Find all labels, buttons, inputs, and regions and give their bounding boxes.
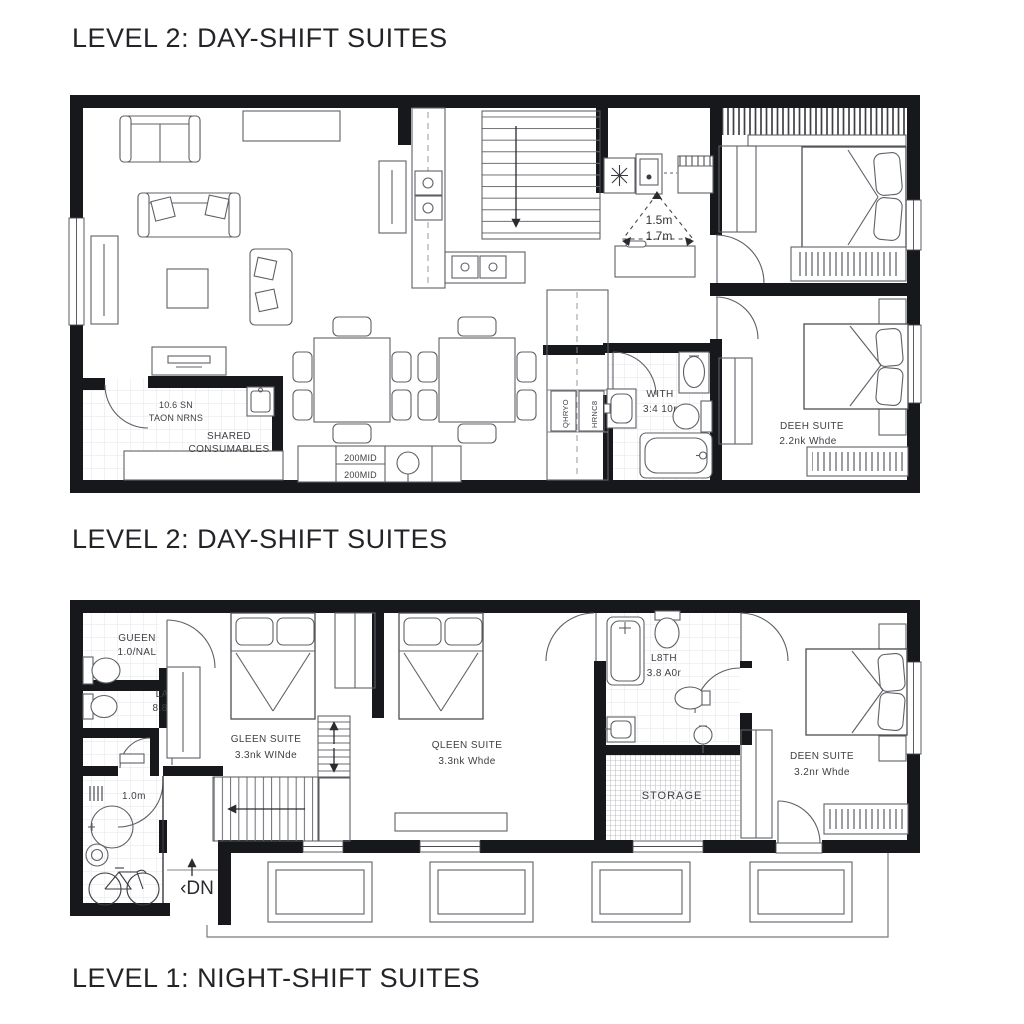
bedroom2-door-arc [716, 297, 758, 339]
bedroom-1 [719, 146, 906, 281]
suite-label: GLEEN SUITE [231, 734, 302, 745]
console-table-symbol [243, 111, 340, 141]
bedroom1-door-arc [716, 235, 764, 283]
suite-label: 2.2nk Whde [779, 436, 836, 447]
nightstand-symbol [879, 299, 906, 325]
window-suite3 [906, 662, 921, 754]
toilet-symbol [655, 611, 680, 648]
dining-table-symbol [418, 317, 536, 443]
window-left [69, 218, 84, 325]
suite1-door-arc [167, 620, 215, 668]
suite-2: QLEEN SUITE 3.3nk Whde [395, 613, 507, 831]
media-cabinet-symbol [379, 161, 406, 233]
balcony-deck [714, 108, 907, 146]
pantry-label: QHRYO [561, 399, 570, 428]
suite-label: 3.3nk Whde [438, 756, 495, 767]
bedroom-2: DEEH SUITE 2.2nk Whde [719, 299, 908, 476]
pedestal-sink-symbol [679, 352, 709, 393]
sink-symbol [605, 717, 635, 742]
counter-cell-label: 200MID [344, 453, 377, 463]
sink-symbol [452, 256, 478, 278]
suite-label: 3.3nk WINde [235, 750, 297, 761]
room-label: WITH [646, 389, 673, 400]
counter-cell-label: 200MID [344, 470, 377, 480]
triangle-dimension: 1.5m [646, 213, 673, 227]
dresser-rail-symbol [807, 447, 908, 476]
armchair-symbol [250, 249, 292, 325]
floorplans-canvas: 200MID 200MID [0, 0, 1024, 1024]
level2-floorplan: 200MID 200MID [69, 95, 921, 493]
deck-planter-symbol [430, 862, 533, 922]
toilet-symbol [83, 657, 120, 684]
suite3-door-arc [740, 613, 788, 661]
pantry-column: QHRYO HRNC8 [547, 290, 608, 480]
bathtub-symbol [640, 433, 712, 478]
appliance-nook: 1.5m 1.7m [604, 154, 713, 277]
double-bed-symbol [399, 613, 483, 719]
door-threshold [776, 843, 822, 853]
room-label: GUEEN [118, 633, 156, 644]
corner-sink-symbol [604, 389, 636, 428]
dresser-rail-symbol [824, 804, 908, 834]
wardrobe-symbol [167, 667, 200, 758]
bathtub-symbol [607, 617, 644, 685]
sofa-symbol [138, 193, 240, 237]
sink-symbol [247, 387, 274, 416]
window-bottom [633, 841, 703, 852]
dresser-rail-symbol [791, 247, 906, 281]
closet-rail-symbol [335, 613, 375, 688]
floorplan-sheet: LEVEL 2: DAY-SHIFT SUITES LEVEL 2: DAY-S… [0, 0, 1024, 1024]
closet-rail-symbol [719, 146, 756, 232]
triangle-dimension: 1.7m [646, 229, 673, 243]
suite-3: DEEN SUITE 3.2nr Whde [741, 624, 908, 838]
sink-symbol [480, 256, 506, 278]
deck-planter-symbol [750, 862, 852, 922]
storage-room: STORAGE [642, 790, 703, 802]
counter-row: 200MID 200MID [298, 446, 461, 482]
suite-label: DEEN SUITE [790, 751, 854, 762]
double-bed-symbol [802, 147, 906, 248]
deck-planter-symbol [268, 862, 372, 922]
appliance-icon [678, 156, 713, 193]
suite-label: 3.2nr Whde [794, 767, 850, 778]
nightstand-symbol [879, 409, 906, 435]
pantry-label: HRNC8 [590, 401, 599, 428]
deck-planter-symbol [592, 862, 690, 922]
patio-door-arc [778, 801, 820, 843]
patio-outline [207, 853, 888, 937]
toilet-symbol [673, 401, 712, 432]
fridge-icon [604, 158, 635, 193]
room-label: L8TH [651, 653, 677, 664]
closet-rail-symbol [719, 358, 752, 444]
room-label: SHARED [207, 431, 251, 442]
room-label: 10.6 SN [159, 400, 193, 410]
stair-dn-label: ‹DN [180, 878, 214, 899]
suite-label: DEEH SUITE [780, 421, 844, 432]
dining-area [293, 317, 536, 443]
desk-symbol [395, 813, 507, 831]
window-bedroom1 [906, 200, 921, 250]
sofa-symbol [120, 116, 200, 162]
entry-stair-hall: ‹DN [167, 860, 218, 899]
room-label: 3:4 10r [643, 404, 677, 415]
sink-symbol [415, 171, 442, 195]
nightstand-symbol [879, 624, 906, 649]
sink-symbol [415, 196, 442, 220]
nightstand-symbol [879, 736, 906, 761]
storage-label: STORAGE [642, 790, 703, 802]
desk-symbol [615, 241, 695, 277]
patio-deck [207, 853, 888, 937]
work-triangle: 1.5m 1.7m [622, 191, 694, 246]
tv-console-symbol [152, 347, 226, 375]
dining-table-symbol [293, 317, 411, 443]
cabinet-symbol [91, 236, 118, 324]
double-bed-symbol [804, 324, 908, 409]
staircase-up [482, 111, 600, 239]
level1-floorplan: GUEEN 1.0/NAL LAGH 8.8 10m 1.0m [70, 600, 921, 937]
coffee-table-symbol [167, 269, 208, 308]
suite2-door-arc [546, 613, 594, 661]
window-bottom [303, 841, 343, 852]
counter-symbol [124, 451, 283, 480]
suite-label: QLEEN SUITE [432, 740, 503, 751]
room-label: TAON NRNS [149, 413, 203, 423]
room-label: CONSUMABLES [188, 444, 269, 455]
range-icon [636, 154, 662, 194]
shelf-symbol [120, 754, 144, 763]
toilet-symbol [83, 694, 117, 719]
room-label: 3.8 A0r [647, 668, 682, 679]
closet-rail-symbol [741, 730, 772, 838]
double-bed-symbol [231, 613, 315, 719]
double-bed-symbol [806, 649, 907, 735]
dimension-label: 1.0m [122, 791, 146, 802]
window-bottom [420, 841, 480, 852]
room-label: 1.0/NAL [118, 647, 157, 658]
